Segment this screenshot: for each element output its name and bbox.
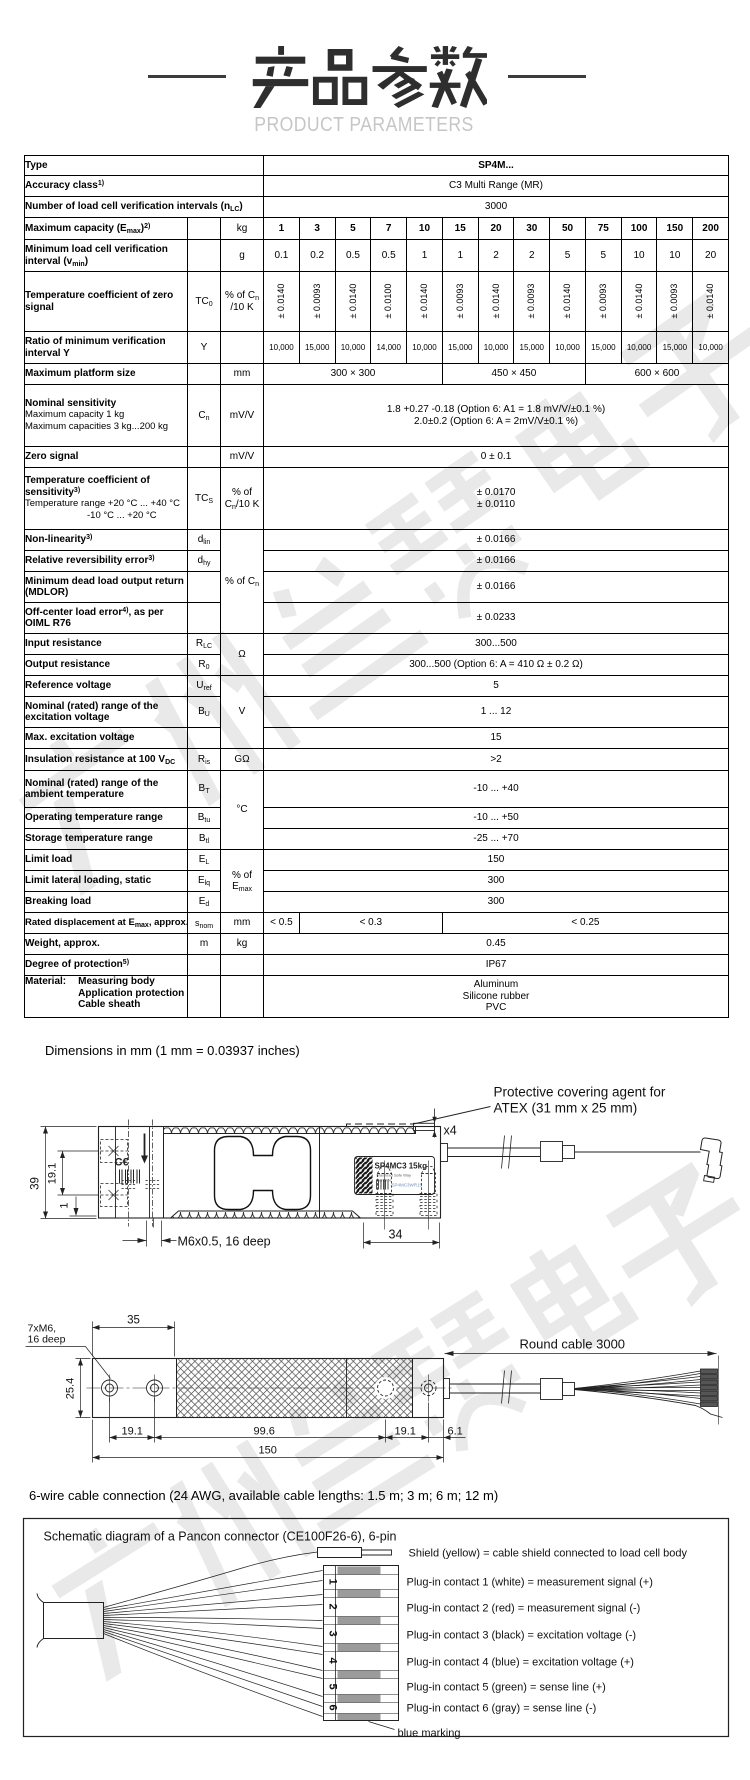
svg-text:Plug-in contact 1 (white) = me: Plug-in contact 1 (white) = measurement … — [407, 1577, 653, 1589]
svg-text:Schematic diagram of a Pancon: Schematic diagram of a Pancon connector … — [44, 1530, 397, 1544]
svg-text:Plug-in contact 6 (gray) = sen: Plug-in contact 6 (gray) = sense line (-… — [407, 1703, 597, 1715]
svg-text:SP4MC3 15kg: SP4MC3 15kg — [375, 1162, 428, 1171]
svg-text:150: 150 — [259, 1445, 277, 1457]
svg-text:5: 5 — [327, 1683, 339, 1689]
svg-text:4: 4 — [327, 1657, 339, 1664]
svg-text:19.1: 19.1 — [47, 1163, 59, 1184]
svg-text:2: 2 — [327, 1603, 339, 1609]
svg-text:39: 39 — [30, 1177, 42, 1190]
svg-text:Plug-in contact 3 (black) = ex: Plug-in contact 3 (black) = excitation v… — [407, 1630, 637, 1642]
svg-text:SP4MC3WR15: SP4MC3WR15 — [392, 1183, 423, 1188]
svg-text:6: 6 — [327, 1704, 339, 1710]
svg-text:35: 35 — [127, 1315, 140, 1327]
svg-text:1: 1 — [59, 1202, 71, 1208]
svg-text:3: 3 — [327, 1630, 339, 1636]
svg-text:blue marking: blue marking — [398, 1728, 461, 1740]
svg-text:99.6: 99.6 — [254, 1426, 275, 1438]
svg-text:Plug-in contact 4 (blue) = exc: Plug-in contact 4 (blue) = excitation vo… — [407, 1657, 634, 1669]
svg-text:19.1: 19.1 — [395, 1426, 416, 1438]
svg-text:ATEX (31 mm x 25 mm): ATEX (31 mm x 25 mm) — [494, 1101, 638, 1116]
svg-text:1: 1 — [327, 1578, 339, 1584]
svg-text:M6x0.5, 16 deep: M6x0.5, 16 deep — [178, 1235, 271, 1249]
svg-text:Plug-in contact 5 (green) = se: Plug-in contact 5 (green) = sense line (… — [407, 1682, 606, 1694]
svg-text:Protective covering agent for: Protective covering agent for — [494, 1085, 666, 1100]
svg-text:Round cable 3000: Round cable 3000 — [520, 1337, 626, 1352]
svg-text:25.4: 25.4 — [65, 1378, 77, 1399]
svg-text:19.1: 19.1 — [122, 1426, 143, 1438]
svg-text:C€: C€ — [115, 1157, 129, 1169]
svg-text:6.1: 6.1 — [448, 1426, 463, 1438]
svg-text:x4: x4 — [444, 1124, 457, 1138]
svg-text:34: 34 — [389, 1228, 403, 1242]
svg-text:Plug-in contact 2 (red) = meas: Plug-in contact 2 (red) = measurement si… — [407, 1603, 641, 1615]
svg-text:Shield (yellow) = cable shield: Shield (yellow) = cable shield connected… — [409, 1548, 688, 1560]
svg-text:16 deep: 16 deep — [28, 1334, 66, 1346]
